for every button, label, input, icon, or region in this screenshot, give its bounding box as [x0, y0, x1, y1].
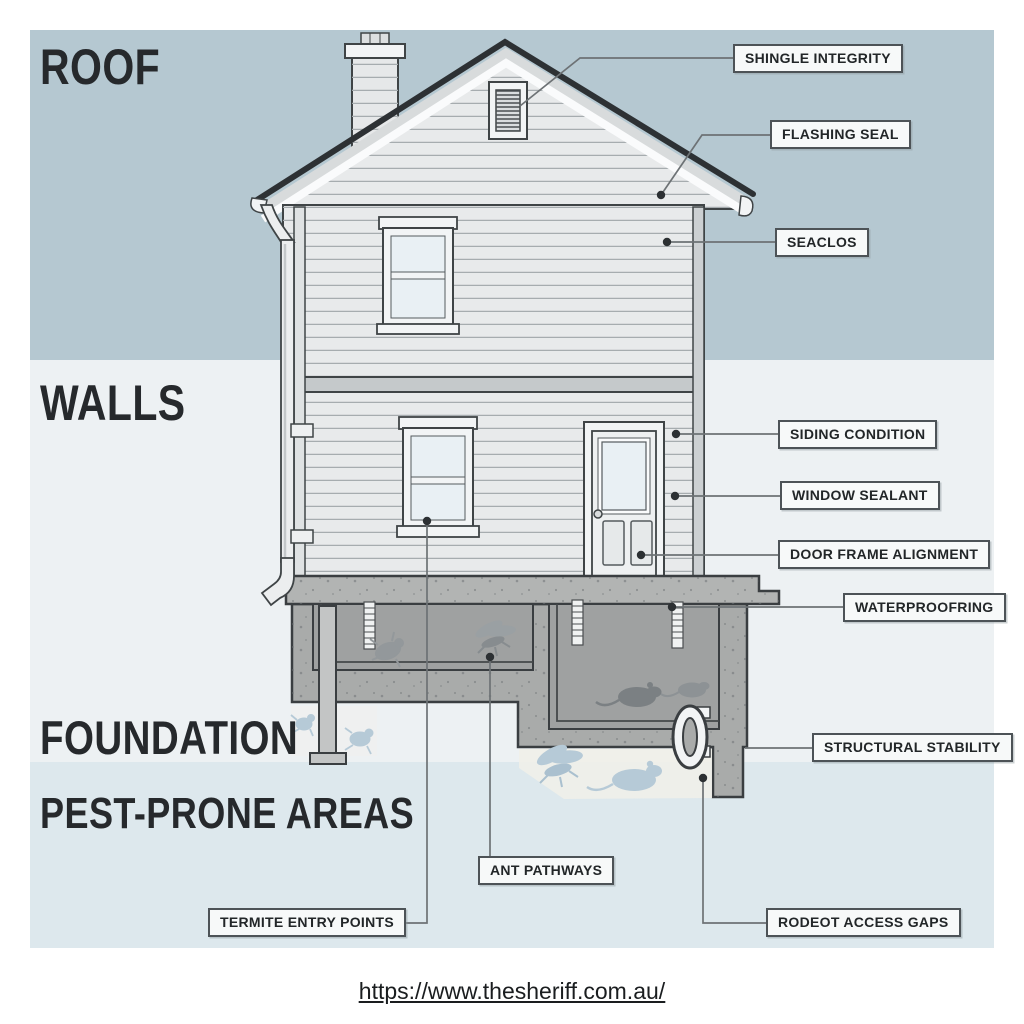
upper-story-wall	[283, 205, 704, 377]
callout-siding-condition: SIDING CONDITION	[778, 420, 937, 449]
callout-ant-pathways: ANT PATHWAYS	[478, 856, 614, 885]
left-corner-trim	[294, 207, 305, 576]
downspout-bracket	[291, 530, 313, 543]
downspout-bracket	[291, 424, 313, 437]
attic-vent-icon	[489, 82, 527, 139]
infographic-canvas: ROOF WALLS FOUNDATION PEST-PRONE AREAS S…	[0, 0, 1024, 1024]
callout-door-frame-alignment: DOOR FRAME ALIGNMENT	[778, 540, 990, 569]
callout-window-sealant: WINDOW SEALANT	[780, 481, 940, 510]
anchor-bolt-icon	[572, 600, 583, 645]
section-label-foundation: FOUNDATION	[40, 714, 298, 761]
callout-flashing-seal: FLASHING SEAL	[770, 120, 911, 149]
callout-termite-entry-points: TERMITE ENTRY POINTS	[208, 908, 406, 937]
callout-waterproofring: WATERPROOFRING	[843, 593, 1006, 622]
doorknob	[594, 510, 602, 518]
callout-seaclos: SEACLOS	[775, 228, 869, 257]
floor-band	[283, 377, 704, 392]
gutter-right-cap	[739, 196, 753, 216]
section-label-walls: WALLS	[40, 378, 186, 428]
callout-shingle-integrity: SHINGLE INTEGRITY	[733, 44, 903, 73]
callout-rodeot-access-gaps: RODEOT ACCESS GAPS	[766, 908, 961, 937]
footer-url-link[interactable]: https://www.thesheriff.com.au/	[359, 978, 665, 1004]
lower-window	[397, 417, 479, 537]
section-label-pest-prone-areas: PEST-PRONE AREAS	[40, 792, 414, 836]
footer-url: https://www.thesheriff.com.au/	[0, 978, 1024, 1005]
callout-structural-stability: STRUCTURAL STABILITY	[812, 733, 1013, 762]
right-corner-trim	[693, 207, 704, 576]
upper-window	[377, 217, 459, 334]
section-label-roof: ROOF	[40, 42, 160, 92]
